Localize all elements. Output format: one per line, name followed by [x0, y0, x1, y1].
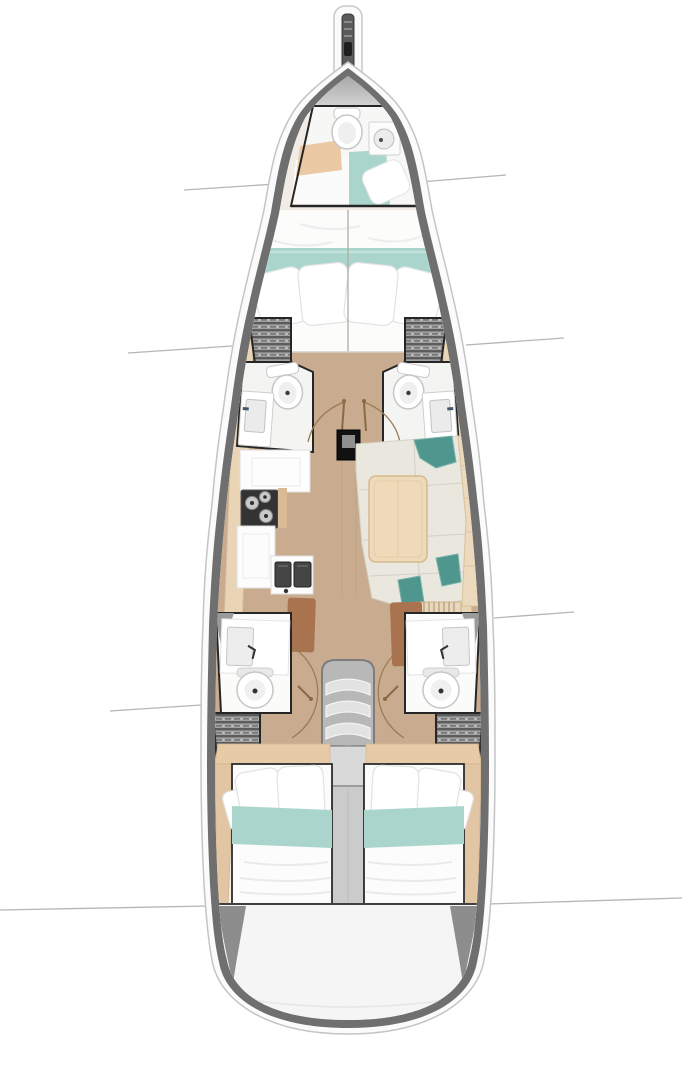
- head-shelf: [366, 744, 481, 764]
- toilet: [237, 668, 273, 708]
- faucet: [447, 407, 453, 410]
- callout-line: [110, 705, 201, 711]
- toilet: [423, 668, 459, 708]
- galley-sink: [271, 556, 313, 594]
- port-aft-cabin: [215, 744, 332, 906]
- callout-line: [494, 612, 574, 618]
- callout-line: [128, 346, 232, 353]
- yacht-floorplan: [0, 0, 682, 1080]
- head-shelf: [215, 744, 330, 764]
- floorplan-canvas: [0, 0, 682, 1080]
- door-hinge: [309, 697, 313, 701]
- door-hinge: [342, 399, 346, 403]
- callout-line: [488, 898, 682, 904]
- stove: [241, 490, 278, 528]
- pillow: [343, 262, 399, 327]
- door-hinge: [383, 697, 387, 701]
- callout-line: [420, 175, 506, 182]
- salon-table: [369, 476, 427, 562]
- sink: [238, 391, 274, 447]
- transom: [200, 904, 496, 1030]
- callout-line: [0, 906, 208, 910]
- bed-teal-runner: [364, 806, 464, 848]
- teal-cushion: [398, 576, 424, 604]
- anchor-roller: [344, 42, 352, 56]
- faucet: [243, 407, 249, 410]
- toilet: [332, 108, 362, 149]
- door-hinge: [362, 399, 366, 403]
- bed-teal-runner: [232, 806, 332, 848]
- callout-line: [466, 338, 564, 345]
- sink: [406, 619, 476, 675]
- faucet: [284, 589, 288, 593]
- sink: [220, 619, 290, 675]
- aft-deck: [200, 905, 496, 1030]
- hanging-locker: [249, 318, 291, 364]
- interior: [195, 60, 501, 1030]
- stove-side-trim: [278, 488, 287, 528]
- hanging-locker: [405, 318, 447, 364]
- starboard-aft-cabin: [364, 744, 481, 906]
- callout-line: [184, 184, 276, 190]
